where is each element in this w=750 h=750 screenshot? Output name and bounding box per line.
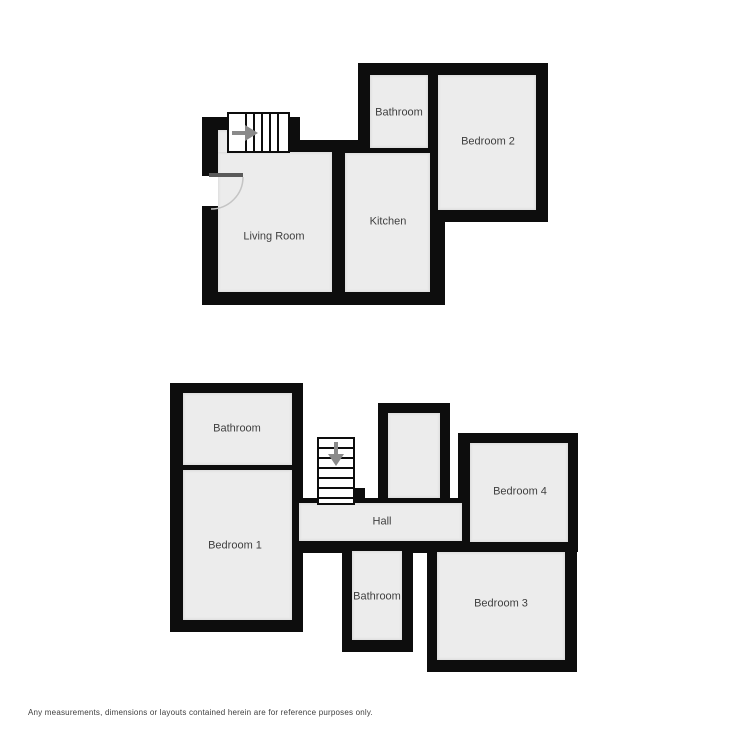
stairs-upper — [227, 112, 290, 153]
room-label-bedroom-3: Bedroom 3 — [474, 599, 528, 610]
room-label-living-room: Living Room — [243, 232, 304, 243]
stair-tread-line — [319, 477, 353, 479]
stair-tread-line — [277, 114, 279, 151]
stair-tread-line — [319, 497, 353, 499]
stairs-up-arrow-icon — [232, 125, 260, 141]
room-label-bathroom-lower-middle: Bathroom — [353, 592, 401, 603]
room-label-bedroom-1: Bedroom 1 — [208, 541, 262, 552]
stairs-lower — [317, 437, 355, 505]
stair-tread-line — [261, 114, 263, 151]
disclaimer-text: Any measurements, dimensions or layouts … — [28, 708, 373, 717]
room-corridor — [388, 413, 440, 498]
room-label-kitchen: Kitchen — [370, 217, 407, 228]
room-label-hall: Hall — [373, 517, 392, 528]
stair-tread-line — [319, 467, 353, 469]
room-label-bathroom-lower-top: Bathroom — [213, 424, 261, 435]
room-label-bedroom-2: Bedroom 2 — [461, 137, 515, 148]
stair-tread-line — [319, 487, 353, 489]
room-label-bathroom-upper: Bathroom — [375, 108, 423, 119]
door-swing-arc — [209, 176, 247, 214]
stair-tread-line — [269, 114, 271, 151]
room-label-bedroom-4: Bedroom 4 — [493, 487, 547, 498]
floorplan-canvas: Living Room Kitchen Bathroom Bedroom 2 — [0, 0, 750, 750]
stairs-down-arrow-icon — [328, 442, 344, 467]
